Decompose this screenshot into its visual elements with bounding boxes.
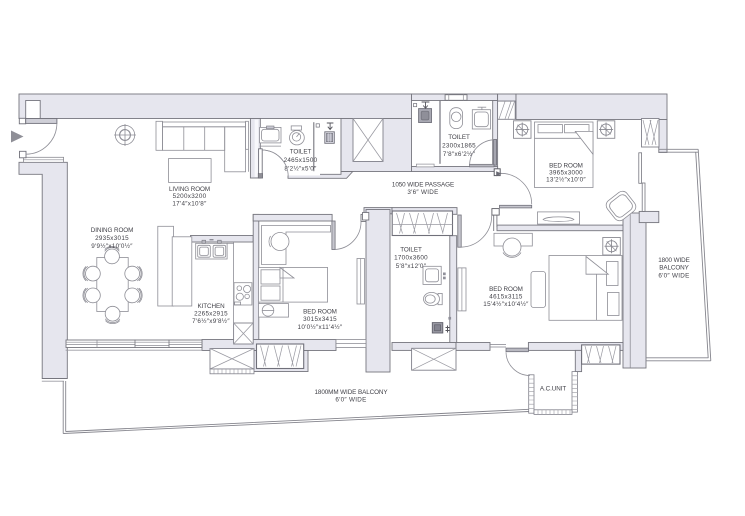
svg-text:BED ROOM: BED ROOM bbox=[489, 286, 523, 293]
svg-text:7′6½″x9′8½″: 7′6½″x9′8½″ bbox=[192, 317, 230, 325]
svg-text:2465x1500: 2465x1500 bbox=[284, 157, 318, 164]
svg-text:1800 WIDE: 1800 WIDE bbox=[658, 257, 689, 264]
svg-text:4615x3115: 4615x3115 bbox=[489, 294, 523, 301]
svg-text:3965x3000: 3965x3000 bbox=[549, 170, 583, 177]
svg-text:TOILET: TOILET bbox=[290, 148, 312, 155]
svg-text:13′2½″x10′0″: 13′2½″x10′0″ bbox=[546, 176, 586, 184]
svg-text:6′0″ WIDE: 6′0″ WIDE bbox=[335, 396, 366, 403]
svg-text:1700x3600: 1700x3600 bbox=[394, 255, 428, 262]
svg-text:1050 WIDE PASSAGE: 1050 WIDE PASSAGE bbox=[392, 181, 454, 188]
svg-text:7′8″x6′2½″: 7′8″x6′2½″ bbox=[443, 150, 476, 158]
svg-text:A.C.UNIT: A.C.UNIT bbox=[540, 385, 567, 392]
svg-text:TOILET: TOILET bbox=[400, 247, 422, 254]
svg-text:15′4½″x10′4½″: 15′4½″x10′4½″ bbox=[483, 300, 529, 308]
svg-text:KITCHEN: KITCHEN bbox=[197, 303, 225, 310]
svg-text:BED ROOM: BED ROOM bbox=[549, 162, 583, 169]
svg-text:10′0½″x11′4½″: 10′0½″x11′4½″ bbox=[298, 323, 343, 331]
svg-text:1800MM WIDE BALCONY: 1800MM WIDE BALCONY bbox=[314, 389, 388, 396]
svg-text:8′2½″x5′0″: 8′2½″x5′0″ bbox=[284, 164, 317, 172]
svg-text:2935x3015: 2935x3015 bbox=[95, 235, 129, 242]
svg-text:BED ROOM: BED ROOM bbox=[303, 308, 337, 315]
svg-text:5200x3200: 5200x3200 bbox=[173, 193, 207, 200]
svg-text:DINING ROOM: DINING ROOM bbox=[91, 227, 134, 234]
svg-text:2300x1865: 2300x1865 bbox=[442, 143, 476, 150]
svg-text:9′9½″x10′0½″: 9′9½″x10′0½″ bbox=[91, 242, 133, 250]
svg-text:2265x2915: 2265x2915 bbox=[194, 311, 228, 318]
svg-text:3015x3415: 3015x3415 bbox=[303, 316, 337, 323]
svg-text:5′8″x12′0″: 5′8″x12′0″ bbox=[396, 263, 427, 270]
svg-text:BALCONY: BALCONY bbox=[659, 265, 689, 272]
svg-text:6′0″ WIDE: 6′0″ WIDE bbox=[658, 272, 689, 279]
svg-text:LIVING ROOM: LIVING ROOM bbox=[169, 186, 210, 193]
svg-text:17′4″x10′8″: 17′4″x10′8″ bbox=[172, 200, 207, 207]
svg-text:TOILET: TOILET bbox=[448, 134, 470, 141]
svg-text:3′6″ WIDE: 3′6″ WIDE bbox=[407, 189, 438, 196]
